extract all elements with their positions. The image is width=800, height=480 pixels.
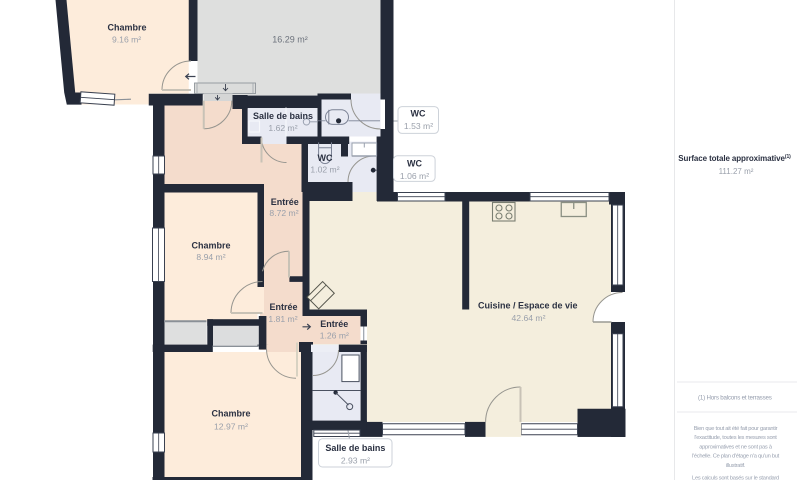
svg-text:(1) Hors balcons et terrasses: (1) Hors balcons et terrasses (698, 395, 772, 402)
svg-text:111.27 m²: 111.27 m² (719, 167, 754, 176)
svg-text:8.94 m²: 8.94 m² (196, 252, 225, 262)
svg-text:12.97 m²: 12.97 m² (214, 422, 248, 432)
svg-text:1.81 m²: 1.81 m² (268, 314, 297, 324)
svg-text:1.53 m²: 1.53 m² (404, 121, 433, 131)
svg-text:Surface totale approximative(1: Surface totale approximative(1) (678, 154, 791, 163)
svg-text:Salle de bains: Salle de bains (325, 443, 385, 453)
svg-text:Chambre: Chambre (107, 23, 146, 33)
svg-text:illustratif.: illustratif. (726, 463, 746, 469)
svg-text:1.26 m²: 1.26 m² (320, 330, 349, 340)
svg-text:Chambre: Chambre (211, 408, 250, 418)
svg-text:approximatives et ne sont pas: approximatives et ne sont pas à (699, 444, 773, 450)
svg-text:9.16 m²: 9.16 m² (112, 34, 141, 44)
svg-text:WC: WC (407, 159, 422, 169)
svg-text:Cuisine / Espace de vie: Cuisine / Espace de vie (478, 301, 578, 311)
svg-text:Les calculs sont basés sur le: Les calculs sont basés sur le standard (692, 475, 779, 480)
svg-text:WC: WC (411, 108, 426, 118)
svg-text:16.29 m²: 16.29 m² (272, 35, 308, 45)
svg-text:1.02 m²: 1.02 m² (310, 164, 339, 174)
svg-text:Entrée: Entrée (320, 319, 348, 329)
svg-text:WC: WC (318, 153, 333, 163)
svg-text:Salle de bains: Salle de bains (253, 111, 313, 121)
svg-text:42.64 m²: 42.64 m² (512, 313, 546, 323)
svg-text:Entrée: Entrée (269, 302, 297, 312)
svg-text:1.06 m²: 1.06 m² (400, 171, 429, 181)
svg-text:l'échelle. Ce plan d'étage n'a: l'échelle. Ce plan d'étage n'a qu'un but (692, 454, 780, 460)
svg-text:8.72 m²: 8.72 m² (269, 208, 298, 218)
svg-text:Bien que tout ait été fait pou: Bien que tout ait été fait pour garantir (694, 426, 778, 432)
svg-text:2.93 m²: 2.93 m² (341, 455, 370, 465)
svg-text:Chambre: Chambre (191, 241, 230, 251)
svg-text:Entrée: Entrée (271, 197, 299, 207)
svg-text:l'exactitude, toutes les mesur: l'exactitude, toutes les mesures sont (694, 435, 777, 441)
svg-text:1.62 m²: 1.62 m² (268, 123, 297, 133)
